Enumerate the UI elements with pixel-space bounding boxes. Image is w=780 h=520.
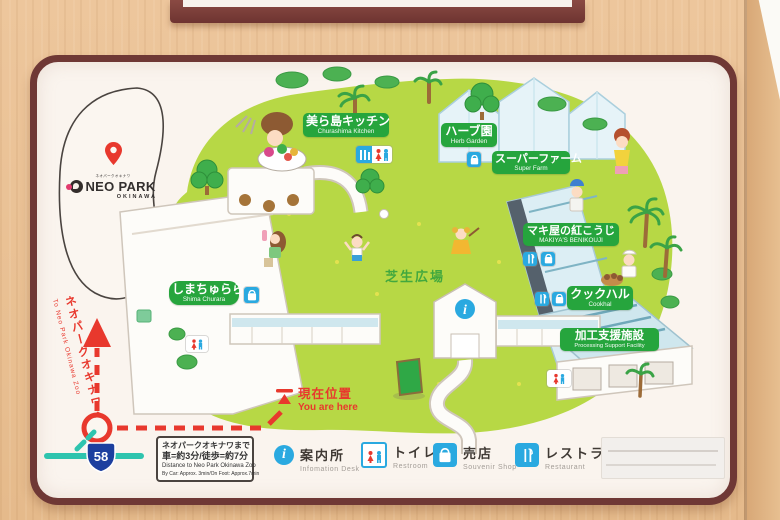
shop-bag-icon (541, 252, 555, 266)
svg-text:i: i (463, 303, 467, 318)
shop-bag-icon (552, 292, 566, 306)
current-location-en: You are here (298, 403, 358, 413)
facility-label-herb-garden: ハーブ園 Herb Garden (441, 123, 497, 147)
legend-information: i 案内所 Infomation Desk (274, 445, 360, 473)
standing-sign (393, 359, 425, 400)
info-icon: i (274, 445, 294, 465)
distance-info-box: ネオパークオキナワまで 車=約3分/徒歩=約7分 Distance to Neo… (156, 436, 254, 482)
restaurant-icon (515, 443, 539, 467)
logo-subtitle: OKINAWA (63, 194, 157, 200)
facility-label-makiya-benikouji: マキ屋の紅こうじ MAKIYA'S BENIKOUJI (523, 223, 619, 246)
shop-bag-icon (433, 443, 457, 467)
restroom-icon (186, 336, 208, 352)
current-location-jp: 現在位置 (298, 388, 358, 401)
bird-mark-icon (70, 180, 83, 193)
upper-sign-paper (183, 0, 572, 7)
erased-label-patch (601, 437, 725, 479)
facility-label-cookhal: クックハル Cookhal (567, 286, 633, 310)
wall-corner (744, 0, 780, 520)
map-board: i (30, 55, 737, 505)
you-are-here-icon (275, 388, 294, 405)
facility-label-churashima-kitchen: 美ら島キッチン Churashima Kitchen (303, 113, 389, 137)
restaurant-icon (523, 252, 537, 266)
route-58-number: 58 (94, 449, 108, 464)
restaurant-icon (535, 292, 549, 306)
facility-label-super-farm: スーパーファーム Super Farm (492, 151, 570, 174)
shop-bag-icon (467, 152, 481, 167)
restroom-icon (361, 442, 387, 468)
facility-label-shima-churara: しまちゅらら Shima Churara (169, 281, 239, 305)
map-pin-icon (105, 142, 122, 165)
logo-title: NEO PARK (85, 179, 155, 194)
ball (380, 210, 389, 219)
photo-scene: i (0, 0, 780, 520)
restroom-icon (356, 146, 392, 163)
current-location: 現在位置 You are here (275, 388, 358, 413)
legend-restroom: トイレ Restroom (361, 442, 438, 470)
restroom-icon (547, 370, 571, 387)
lawn-plaza-label: 芝生広場 (385, 266, 445, 285)
shop-bag-icon (244, 287, 259, 303)
legend-souvenir-shop: 売店 Souvenir Shop (433, 443, 517, 471)
illustration-woman-right (614, 128, 630, 174)
neo-park-logo: ネオパークオキナワ NEO PARK OKINAWA (63, 142, 163, 200)
facility-label-processing-facility: 加工支援施設 Processing Support Facility (560, 328, 659, 351)
